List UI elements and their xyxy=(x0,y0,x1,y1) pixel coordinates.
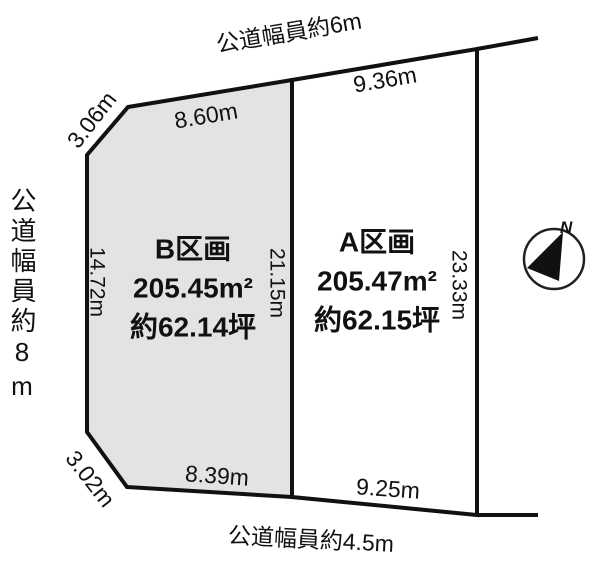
parcel-a-label: A区画 205.47m² 約62.15坪 xyxy=(314,223,440,340)
land-plot-diagram: N 公道幅員約6m 公道幅員約8m 公道幅員約4.5m 8.60m 3.06m … xyxy=(0,0,600,571)
compass-icon: N xyxy=(524,218,584,289)
parcel-a-area-tsubo: 約62.15坪 xyxy=(314,301,440,340)
parcel-b-label: B区画 205.45m² 約62.14坪 xyxy=(130,230,256,347)
parcel-a-area-m2: 205.47m² xyxy=(314,262,440,301)
parcel-b-area-tsubo: 約62.14坪 xyxy=(130,308,256,347)
parcel-a-name: A区画 xyxy=(314,223,440,262)
dim-a-right: 23.33m xyxy=(449,250,470,320)
parcel-b-area-m2: 205.45m² xyxy=(130,269,256,308)
top-road-line-extension xyxy=(477,38,538,49)
dim-b-bottom: 8.39m xyxy=(184,462,249,489)
dim-b-right: 21.15m xyxy=(267,248,288,318)
parcel-b-name: B区画 xyxy=(130,230,256,269)
dim-a-bottom: 9.25m xyxy=(355,475,420,502)
road-label-left: 公道幅員約8m xyxy=(9,187,35,405)
dim-b-left: 14.72m xyxy=(87,247,108,317)
compass-north-label: N xyxy=(560,218,573,237)
